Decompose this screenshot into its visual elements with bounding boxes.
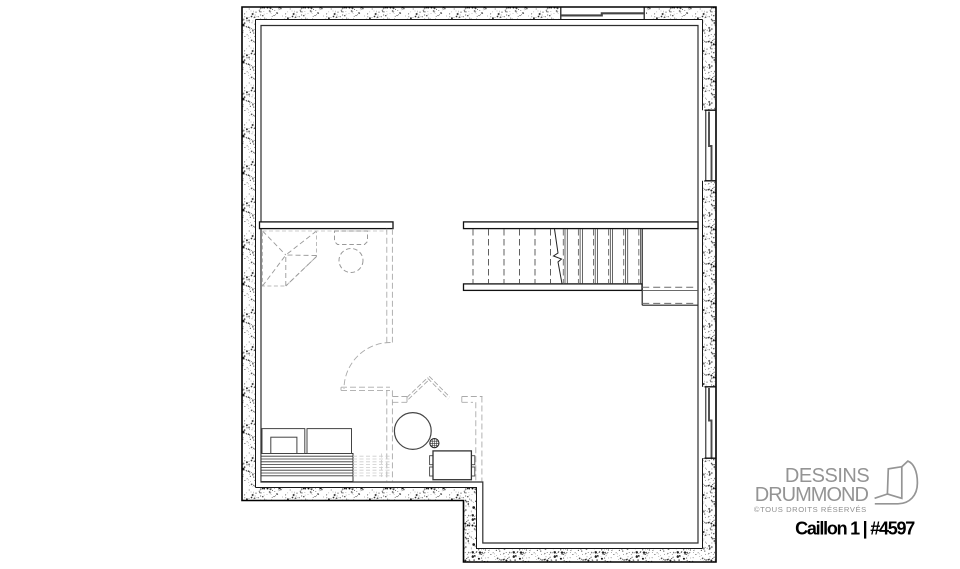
svg-text:Caillon 1 | #4597: Caillon 1 | #4597 [795,519,915,539]
svg-text:DRUMMOND: DRUMMOND [755,484,869,506]
svg-text:©TOUS DROITS RÉSERVÉS: ©TOUS DROITS RÉSERVÉS [754,505,867,514]
